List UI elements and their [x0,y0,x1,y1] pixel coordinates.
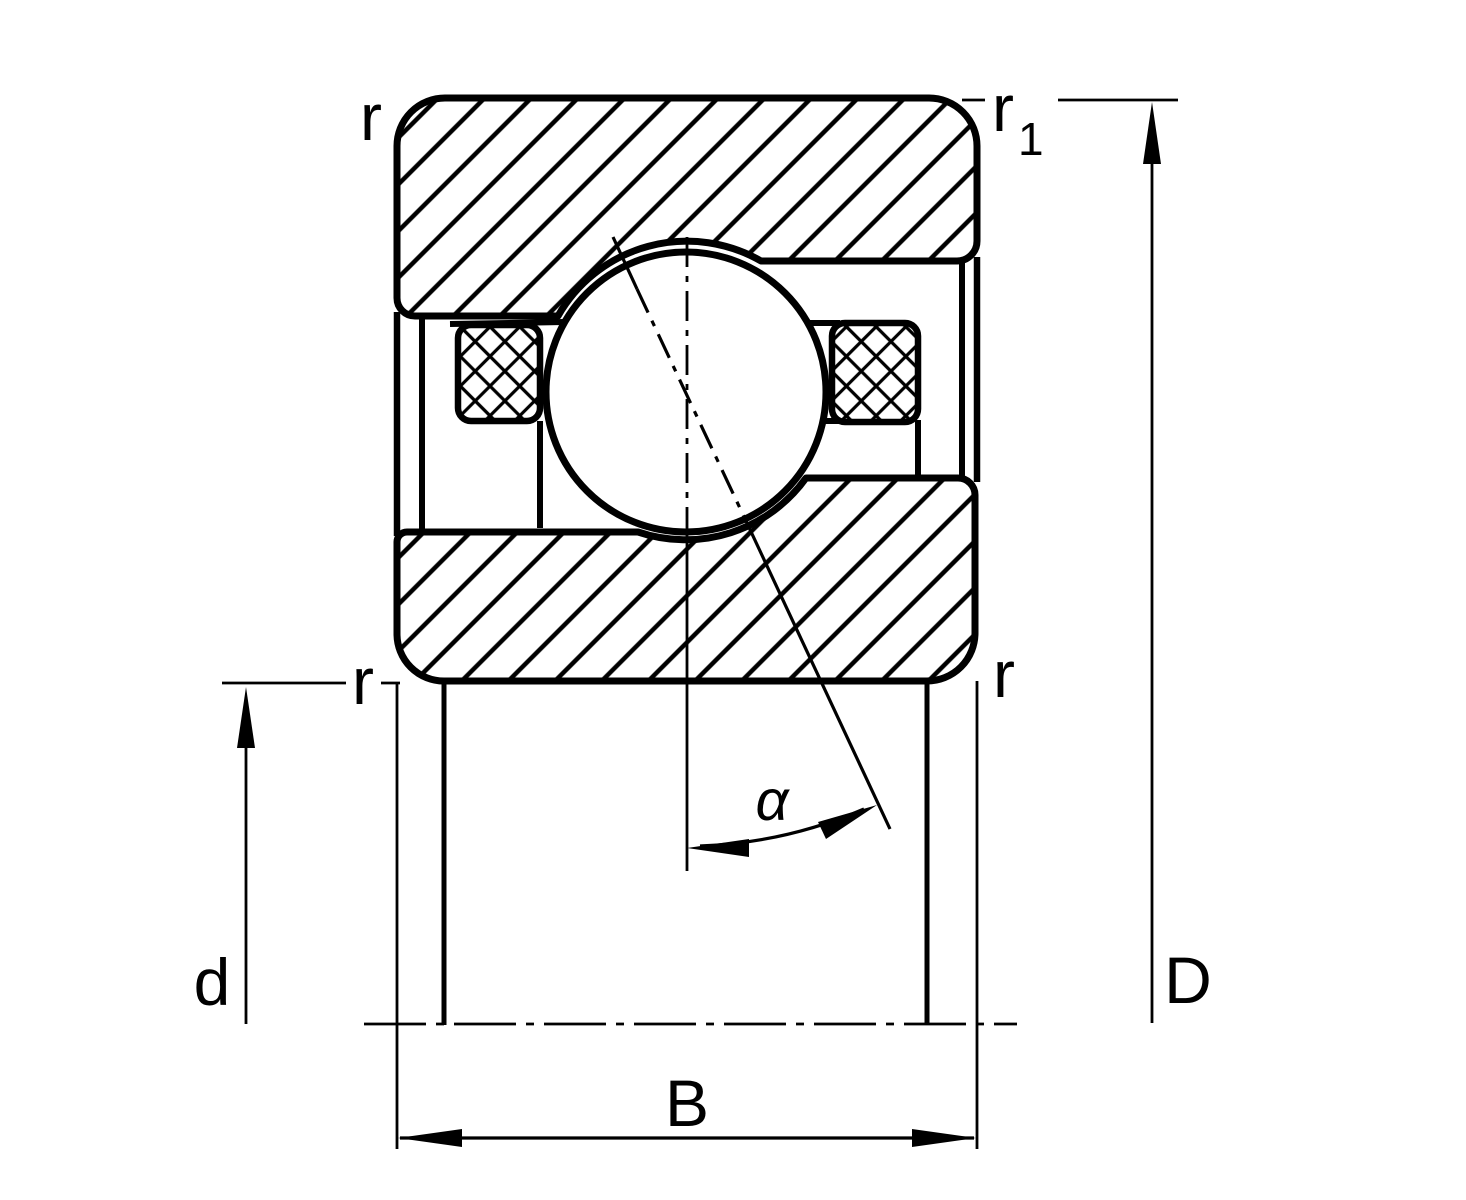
alpha-arrowhead-right [818,805,877,839]
D-arrowhead [1143,102,1161,164]
bearing-cross-section-diagram: r r 1 r r d D B α [0,0,1466,1200]
label-r-inner-left: r [352,644,374,718]
alpha-arrowhead-left [687,839,749,857]
B-arrowhead-right [912,1129,976,1147]
bearing-drawing-canvas: r r 1 r r d D B α [0,0,1466,1200]
label-outside-diameter: D [1164,943,1212,1017]
svg-text:1: 1 [1018,113,1044,165]
B-arrowhead-left [398,1129,462,1147]
left-seal-body [458,325,540,421]
label-contact-angle: α [755,768,790,833]
label-r-inner-right: r [993,637,1015,711]
dimension-D [1143,102,1161,1023]
dimension-d [237,687,255,1024]
d-arrowhead [237,687,255,748]
right-seal-body [832,323,918,422]
label-r-top-left: r [360,80,382,154]
label-r1-top-right: r 1 [992,71,1044,165]
label-width: B [665,1066,709,1140]
svg-text:r: r [992,71,1014,145]
label-bore-diameter: d [194,945,231,1019]
